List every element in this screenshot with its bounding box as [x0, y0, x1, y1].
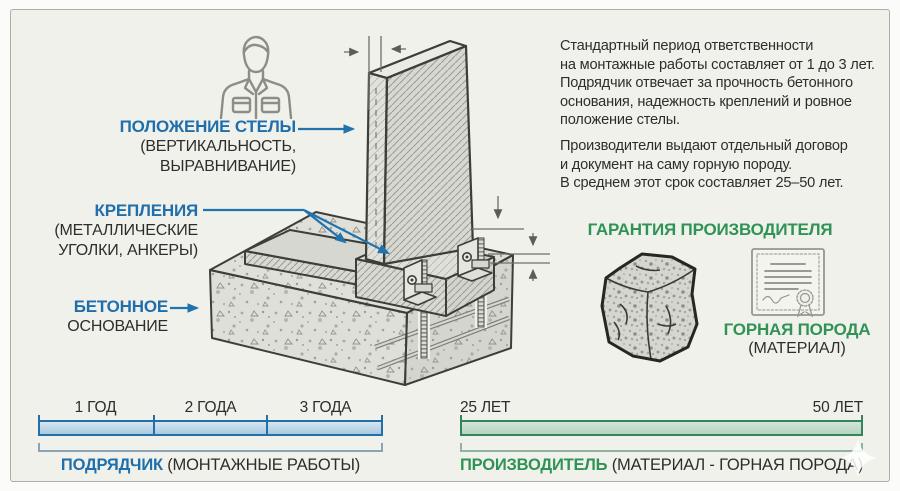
stele-slab [366, 41, 473, 264]
callout-stele-position: ПОЛОЖЕНИЕ СТЕЛЫ (ВЕРТИКАЛЬНОСТЬ, ВЫРАВНИ… [40, 117, 296, 177]
stele-callout-sub1: (ВЕРТИКАЛЬНОСТЬ, [40, 137, 296, 157]
fasteners-callout-sub1: (МЕТАЛЛИЧЕСКИЕ [20, 221, 198, 241]
callout-fasteners: КРЕПЛЕНИЯ (МЕТАЛЛИЧЕСКИЕ УГОЛКИ, АНКЕРЫ) [20, 201, 198, 261]
contractor-bar [38, 420, 383, 436]
manufacturer-bar [460, 420, 863, 436]
tick-2-years: 2 ГОДА [153, 399, 268, 417]
fasteners-callout-title: КРЕПЛЕНИЯ [20, 201, 198, 221]
callout-foundation: БЕТОННОЕ ОСНОВАНИЕ [20, 297, 168, 337]
manufacturer-caption-rest: (МАТЕРИАЛ - ГОРНАЯ ПОРОДА) [607, 456, 863, 474]
tick-3-years: 3 ГОДА [268, 399, 383, 417]
manufacturer-caption-bold: ПРОИЗВОДИТЕЛЬ [460, 456, 607, 474]
stele-callout-title: ПОЛОЖЕНИЕ СТЕЛЫ [40, 117, 296, 137]
tick-25-years: 25 ЛЕТ [460, 399, 510, 417]
foundation-callout-title: БЕТОННОЕ [20, 297, 168, 317]
material-label: ГОРНАЯ ПОРОДА (МАТЕРИАЛ) [713, 320, 881, 358]
info-line: Подрядчик отвечает за прочность бетонног… [560, 74, 885, 93]
info-line: В среднем этот срок составляет 25–50 лет… [560, 174, 885, 193]
contractor-bracket [38, 443, 383, 452]
fasteners-callout-sub2: УГОЛКИ, АНКЕРЫ) [20, 241, 198, 261]
tick-1-year: 1 ГОД [38, 399, 153, 417]
manufacturer-caption: ПРОИЗВОДИТЕЛЬ (МАТЕРИАЛ - ГОРНАЯ ПОРОДА) [460, 456, 863, 475]
contractor-caption: ПОДРЯДЧИК (МОНТАЖНЫЕ РАБОТЫ) [38, 456, 383, 475]
warranty-title: ГАРАНТИЯ ПРОИЗВОДИТЕЛЯ [585, 220, 835, 240]
worker-icon [211, 31, 303, 119]
info-line: Стандартный период ответственности [560, 37, 885, 56]
info-line: на монтажные работы составляет от 1 до 3… [560, 56, 885, 75]
info-line: Производители выдают отдельный договор [560, 137, 885, 156]
manufacturer-bracket [460, 443, 863, 452]
foundation-callout-sub: ОСНОВАНИЕ [20, 317, 168, 337]
infographic-canvas: ПОЛОЖЕНИЕ СТЕЛЫ (ВЕРТИКАЛЬНОСТЬ, ВЫРАВНИ… [0, 0, 900, 491]
info-line: и документ на саму горную породу. [560, 156, 885, 175]
stele-callout-sub2: ВЫРАВНИВАНИЕ) [40, 157, 296, 177]
certificate-icon [748, 246, 832, 322]
material-title: ГОРНАЯ ПОРОДА [713, 320, 881, 340]
info-line: положение стелы. [560, 111, 885, 130]
material-note: (МАТЕРИАЛ) [713, 340, 881, 358]
info-text-block: Стандартный период ответственности на мо… [560, 37, 885, 193]
contractor-caption-rest: (МОНТАЖНЫЕ РАБОТЫ) [163, 456, 360, 474]
sparkle-icon [838, 438, 878, 478]
contractor-caption-bold: ПОДРЯДЧИК [61, 456, 163, 474]
info-line: основания, надежность креплений и ровное [560, 93, 885, 112]
tick-50-years: 50 ЛЕТ [763, 399, 863, 417]
stone-cube-icon [596, 244, 708, 370]
